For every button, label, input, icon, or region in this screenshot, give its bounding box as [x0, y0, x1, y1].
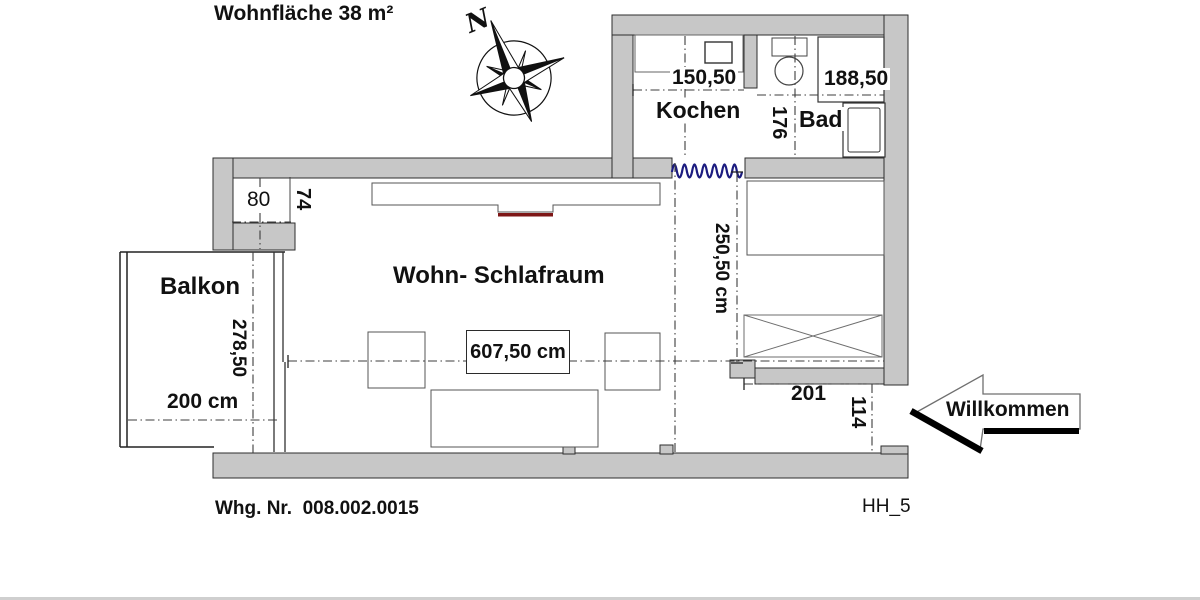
entry-arrow-label: Willkommen [946, 399, 1070, 421]
bath-sink [772, 38, 807, 56]
dim-kochen-width: 150,50 [670, 67, 738, 89]
wall-kitchen-left [612, 15, 633, 178]
sofa [431, 390, 598, 447]
wall-kitchen-bottom-left [633, 158, 672, 178]
wall-stub-2 [660, 445, 673, 454]
room-label-bad: Bad [797, 107, 844, 131]
room-label-kochen: Kochen [654, 98, 742, 122]
balcony-door [274, 252, 285, 452]
wall-bottom [213, 453, 908, 478]
curtain-icon [672, 165, 742, 178]
dim-niche-depth: 74 [292, 186, 313, 212]
side-table-left [368, 332, 425, 388]
dim-niche-width: 80 [245, 189, 272, 211]
dim-bad-width: 188,50 [822, 68, 890, 90]
bathtub-inner [848, 108, 880, 152]
wall-top-left [213, 158, 612, 178]
wall-partition-kochen-bad [744, 35, 757, 88]
dim-wohn-length-box: 607,50 cm [466, 330, 570, 374]
dim-entry-depth: 114 [847, 394, 868, 430]
dim-entry-width: 201 [791, 383, 826, 405]
bed [747, 181, 884, 255]
compass-rose-icon: N [440, 0, 582, 139]
toilet [775, 57, 803, 85]
wall-stub-entry [881, 446, 908, 454]
dim-balkon-width: 200 cm [165, 391, 240, 413]
wardrobe [744, 315, 882, 357]
page-title: Wohnfläche 38 m² [214, 3, 393, 25]
dim-wohn-length: 607,50 cm [470, 341, 566, 364]
dim-wohn-depth: 250,50 cm [711, 221, 731, 316]
floor-plan-drawing: N [0, 0, 1200, 600]
dim-bad-depth: 176 [768, 104, 789, 141]
wall-niche-bottom [233, 223, 295, 250]
wall-left [213, 158, 233, 250]
wall-kitchen-bottom-right [745, 158, 884, 178]
wall-kitchen-top [612, 15, 908, 35]
floor-plan-page: N Wohnfläche 38 m² Kochen 150,50 Bad 188… [0, 0, 1200, 600]
footer-plan-code: HH_5 [862, 497, 911, 517]
tv-board-accent [498, 213, 553, 217]
dim-balkon-depth: 278,50 [228, 317, 248, 379]
kitchen-sink [705, 42, 732, 63]
compass-north-label: N [460, 3, 495, 41]
room-label-balkon: Balkon [158, 274, 242, 299]
footer-apartment-number: Whg. Nr. 008.002.0015 [215, 499, 419, 519]
room-label-wohn-schlafraum: Wohn- Schlafraum [391, 263, 607, 288]
shelf [372, 183, 660, 212]
